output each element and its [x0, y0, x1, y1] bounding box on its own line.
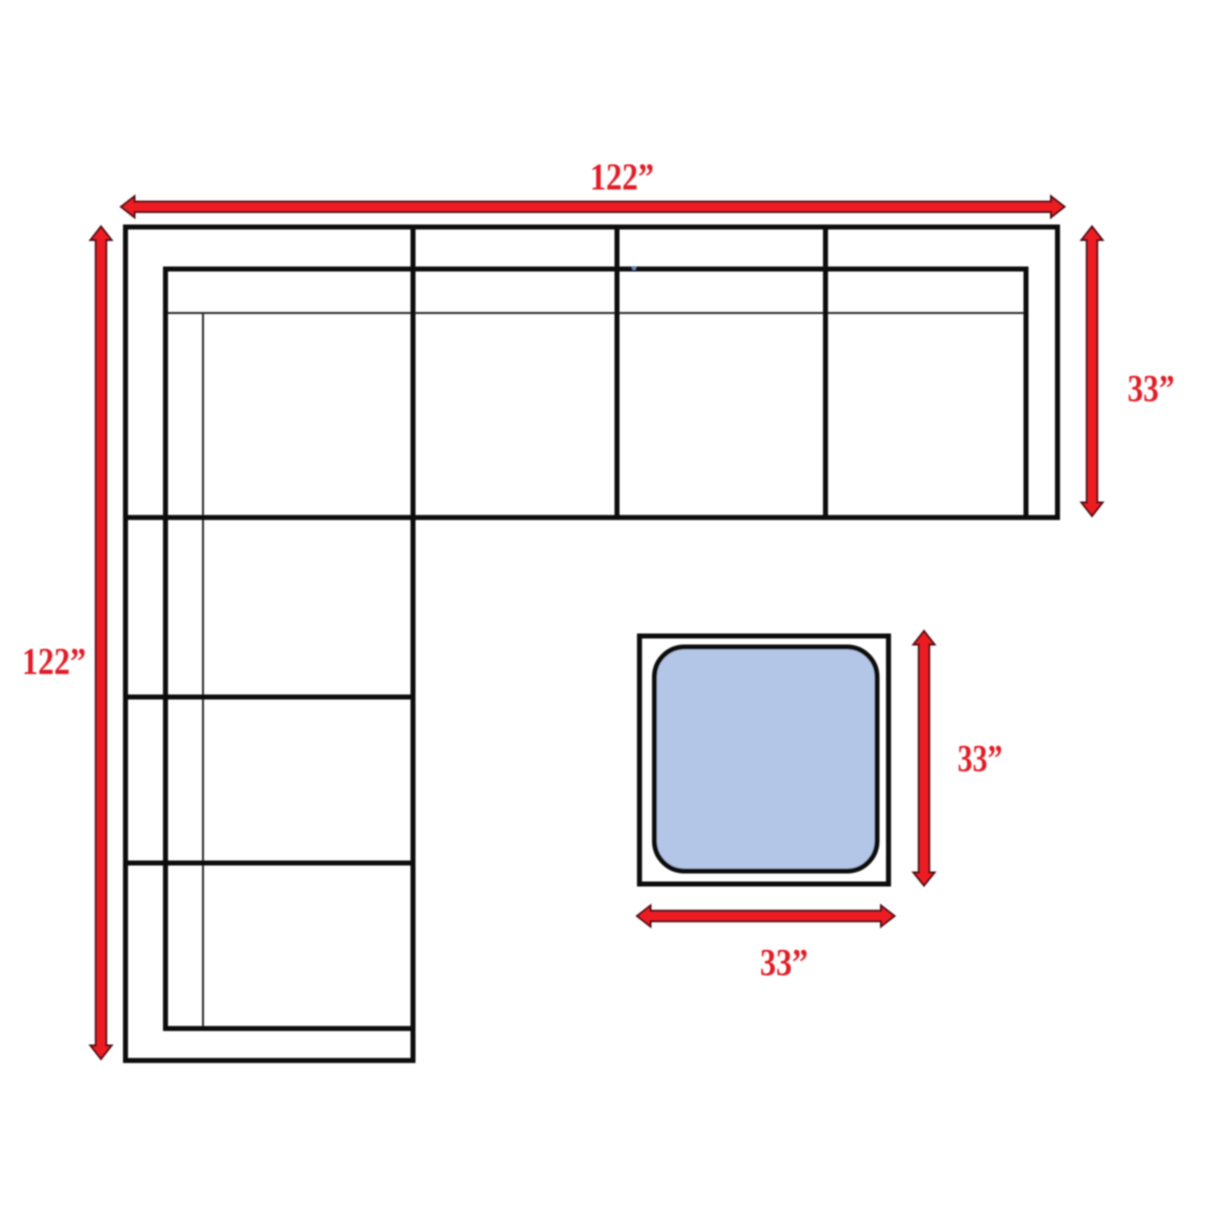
- svg-text:33”: 33”: [1128, 368, 1175, 410]
- svg-text:33”: 33”: [760, 942, 808, 984]
- svg-text:122”: 122”: [590, 157, 654, 199]
- svg-text:122”: 122”: [22, 641, 86, 683]
- svg-text:33”: 33”: [958, 738, 1003, 780]
